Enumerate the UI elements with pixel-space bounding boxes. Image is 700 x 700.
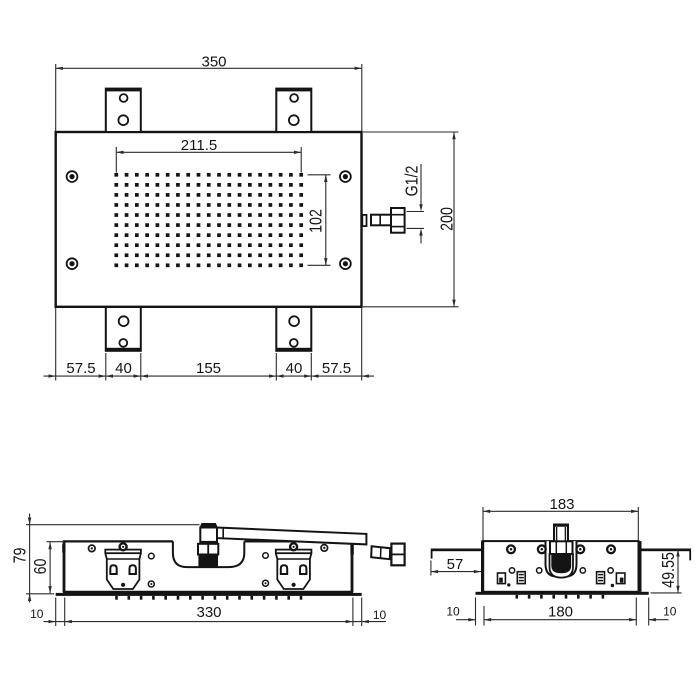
svg-text:57.5: 57.5 — [66, 360, 95, 377]
svg-text:60: 60 — [30, 559, 50, 575]
svg-text:10: 10 — [663, 605, 677, 619]
svg-text:79: 79 — [10, 548, 30, 564]
svg-text:211.5: 211.5 — [181, 137, 217, 154]
svg-text:10: 10 — [30, 607, 44, 621]
svg-text:102: 102 — [306, 209, 326, 233]
svg-text:10: 10 — [373, 608, 387, 622]
svg-text:40: 40 — [286, 360, 303, 377]
svg-text:40: 40 — [115, 360, 132, 377]
svg-text:183: 183 — [549, 496, 574, 513]
svg-text:57: 57 — [447, 556, 464, 573]
svg-text:G1/2: G1/2 — [402, 166, 422, 197]
svg-text:155: 155 — [196, 360, 221, 377]
svg-text:49.55: 49.55 — [658, 552, 678, 588]
svg-text:180: 180 — [548, 604, 573, 621]
svg-text:330: 330 — [196, 604, 221, 621]
svg-text:350: 350 — [201, 53, 226, 70]
svg-text:10: 10 — [446, 605, 460, 619]
svg-text:57.5: 57.5 — [322, 360, 351, 377]
svg-text:200: 200 — [437, 207, 457, 231]
